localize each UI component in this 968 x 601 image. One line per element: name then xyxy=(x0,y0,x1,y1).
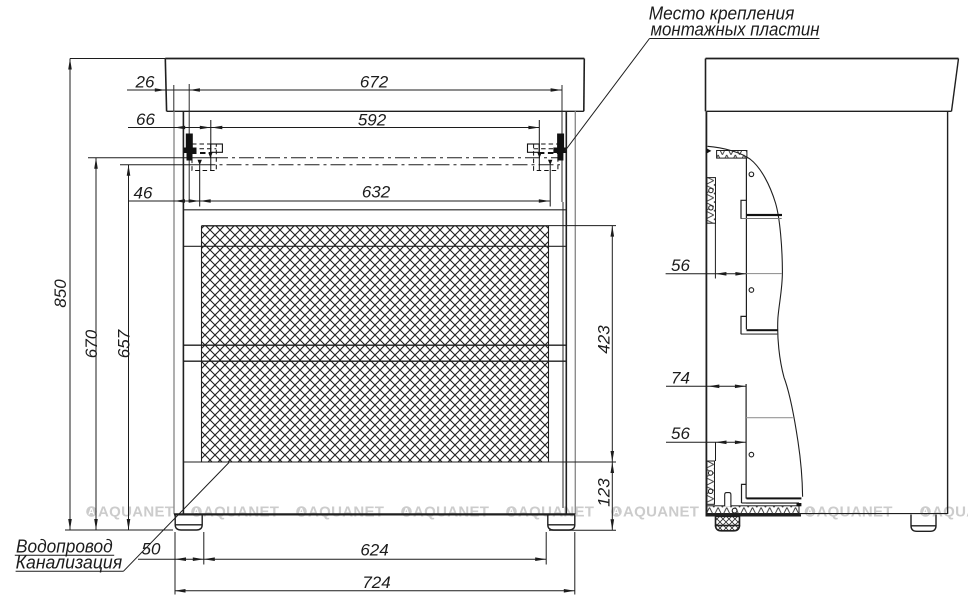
svg-text:123: 123 xyxy=(595,478,614,507)
svg-text:592: 592 xyxy=(358,111,387,130)
svg-text:624: 624 xyxy=(360,541,388,560)
svg-text:74: 74 xyxy=(671,369,690,388)
svg-text:66: 66 xyxy=(136,110,155,129)
svg-text:657: 657 xyxy=(115,329,134,358)
svg-text:850: 850 xyxy=(51,279,70,308)
svg-text:724: 724 xyxy=(362,573,390,592)
svg-text:AQUANET: AQUANET xyxy=(413,504,489,521)
svg-text:AQUANET: AQUANET xyxy=(308,504,384,521)
svg-text:46: 46 xyxy=(134,184,153,203)
svg-text:A: A xyxy=(88,507,95,517)
svg-text:56: 56 xyxy=(671,256,690,275)
svg-text:A: A xyxy=(807,507,814,517)
svg-text:монтажных пластин: монтажных пластин xyxy=(651,20,820,40)
svg-text:672: 672 xyxy=(360,73,389,92)
svg-text:AQUANET: AQUANET xyxy=(98,504,174,521)
svg-text:26: 26 xyxy=(135,73,155,92)
svg-text:AQUANET: AQUANET xyxy=(518,504,594,521)
svg-text:56: 56 xyxy=(671,424,690,443)
svg-text:AQUANET: AQUANET xyxy=(932,504,968,521)
svg-text:670: 670 xyxy=(82,329,101,358)
svg-text:AQUANET: AQUANET xyxy=(623,504,699,521)
svg-text:AQUANET: AQUANET xyxy=(203,504,279,521)
svg-text:A: A xyxy=(922,507,929,517)
svg-text:632: 632 xyxy=(362,183,391,202)
svg-text:423: 423 xyxy=(595,325,614,354)
svg-text:AQUANET: AQUANET xyxy=(817,504,893,521)
svg-text:A: A xyxy=(613,507,620,517)
